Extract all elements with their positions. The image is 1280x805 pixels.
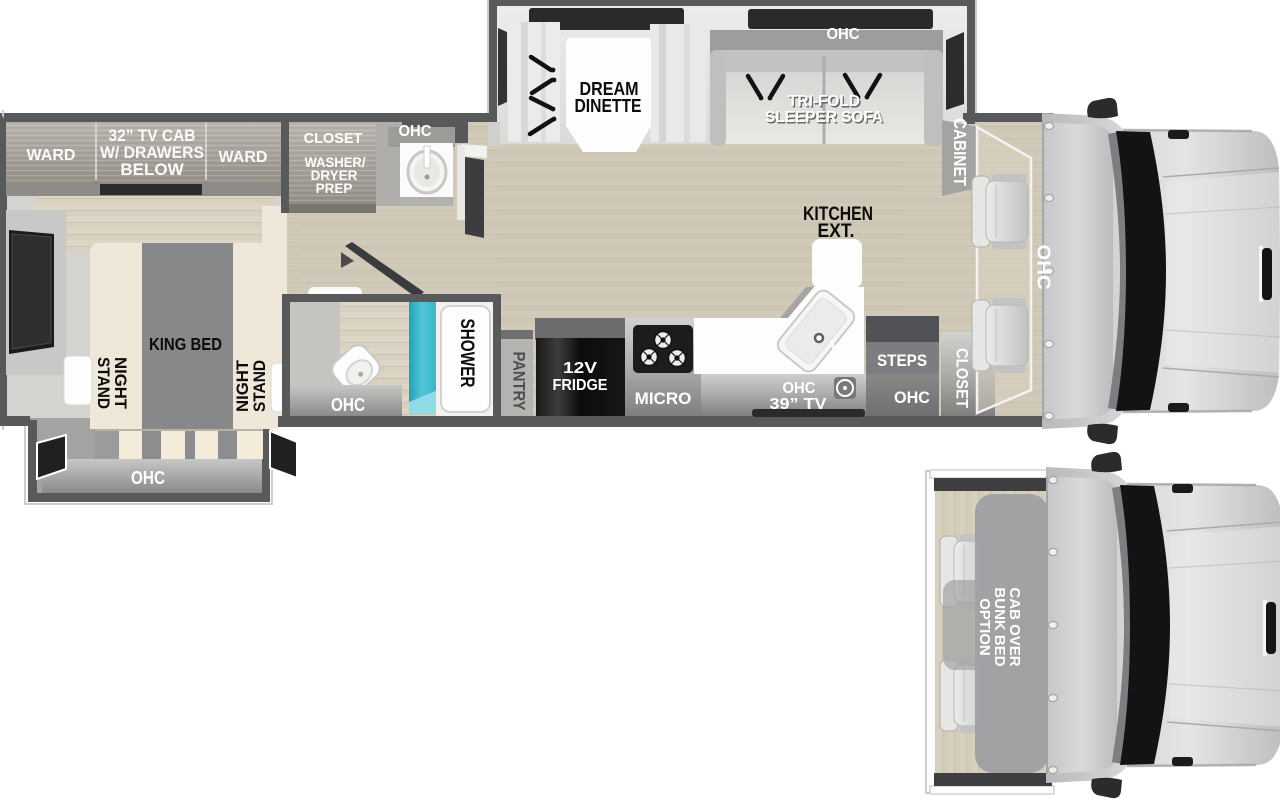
svg-text:CLOSET: CLOSET <box>304 131 363 147</box>
svg-text:OHC: OHC <box>131 467 165 488</box>
svg-text:OHC: OHC <box>827 26 860 43</box>
svg-text:CABINET: CABINET <box>950 118 970 186</box>
svg-text:39” TV: 39” TV <box>770 396 827 413</box>
svg-text:STAND: STAND <box>94 357 113 409</box>
svg-text:OHC: OHC <box>1034 245 1054 290</box>
svg-text:12V: 12V <box>563 360 597 377</box>
svg-text:PANTRY: PANTRY <box>510 352 529 412</box>
svg-text:SHOWER: SHOWER <box>456 319 477 388</box>
svg-text:TRI-FOLD: TRI-FOLD <box>788 93 860 110</box>
svg-text:SLEEPER SOFA: SLEEPER SOFA <box>765 109 883 126</box>
svg-text:FRIDGE: FRIDGE <box>553 377 608 394</box>
svg-text:OHC: OHC <box>331 395 365 415</box>
svg-text:EXT.: EXT. <box>818 221 855 242</box>
svg-text:CLOSET: CLOSET <box>953 348 972 409</box>
svg-text:DINETTE: DINETTE <box>575 96 642 116</box>
svg-text:MICRO: MICRO <box>635 389 692 408</box>
svg-text:OHC: OHC <box>783 380 816 397</box>
svg-text:OHC: OHC <box>894 388 930 407</box>
svg-text:OPTION: OPTION <box>976 598 993 656</box>
svg-text:STAND: STAND <box>250 360 269 412</box>
svg-text:OHC: OHC <box>399 123 432 140</box>
svg-text:PREP: PREP <box>316 181 353 196</box>
svg-text:KING BED: KING BED <box>149 334 222 354</box>
svg-text:STEPS: STEPS <box>877 351 927 370</box>
